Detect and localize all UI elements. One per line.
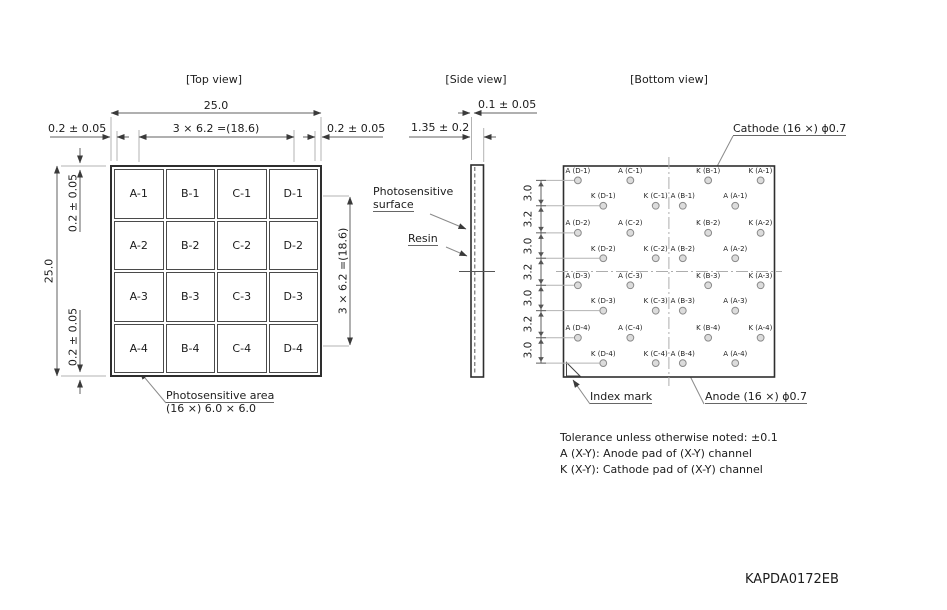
resin-label: Resin [408, 232, 438, 246]
note-cathode-legend: K (X-Y): Cathode pad of (X-Y) channel [560, 462, 778, 478]
pad-label: A (B-2) [671, 245, 695, 253]
note-anode-legend: A (X-Y): Anode pad of (X-Y) channel [560, 446, 778, 462]
anode-callout: Anode (16 ×) ϕ0.7 [705, 390, 807, 403]
pitch-dim-label: 3.0 [523, 290, 536, 307]
dim-edge-bottom: 0.2 ± 0.05 [67, 308, 80, 366]
resin-callout: Resin [408, 232, 438, 245]
pitch-dim-label: 3.2 [523, 263, 536, 280]
pitch-dim-label: 3.2 [523, 211, 536, 228]
pad-label: A (C-3) [618, 272, 642, 280]
pitch-dim-label: 3.0 [523, 342, 536, 359]
part-number: KAPDA0172EB [745, 572, 839, 587]
pad-label: K (C-1) [644, 192, 668, 200]
pad-label: K (C-3) [644, 297, 668, 305]
pad-label: K (A-1) [748, 167, 772, 175]
pitch-dim-label: 3.0 [523, 237, 536, 254]
dim-edge-right: 0.2 ± 0.05 [327, 122, 385, 135]
pad-label: A (C-1) [618, 167, 642, 175]
pad-label: K (C-4) [644, 350, 668, 358]
pad-label: A (B-1) [671, 192, 695, 200]
anode-label: Anode (16 ×) ϕ0.7 [705, 390, 807, 404]
pad-label: K (B-4) [696, 324, 720, 332]
surface-label-line2: surface [373, 198, 414, 212]
pad-label: K (D-4) [591, 350, 616, 358]
photosensitive-area-callout: Photosensitive area (16 ×) 6.0 × 6.0 [166, 389, 274, 415]
surface-label-line1: Photosensitive [373, 185, 453, 198]
dim-pitch-horizontal: 3 × 6.2 =(18.6) [173, 122, 260, 135]
cathode-label: Cathode (16 ×) ϕ0.7 [733, 122, 846, 136]
pad-label: A (D-2) [565, 219, 590, 227]
note-tolerance: Tolerance unless otherwise noted: ±0.1 [560, 430, 778, 446]
pad-label: K (C-2) [644, 245, 668, 253]
pad-label: A (C-4) [618, 324, 642, 332]
pad-label: K (D-2) [591, 245, 616, 253]
pad-label: A (A-3) [723, 297, 747, 305]
photosensitive-area-label: Photosensitive area [166, 389, 274, 403]
dim-pitch-vertical: 3 × 6.2 =(18.6) [337, 228, 350, 315]
index-mark-label: Index mark [590, 390, 652, 404]
pad-label: K (A-4) [748, 324, 772, 332]
bottom-view-title: [Bottom view] [630, 73, 708, 86]
pad-label: K (B-2) [696, 219, 720, 227]
pitch-dim-label: 3.2 [523, 316, 536, 333]
cathode-callout: Cathode (16 ×) ϕ0.7 [733, 122, 846, 135]
top-view-title: [Top view] [186, 73, 242, 86]
pad-label: K (A-2) [748, 219, 772, 227]
pad-label: K (D-3) [591, 297, 616, 305]
technical-drawing-page: A-1B-1C-1D-1A-2B-2C-2D-2A-3B-3C-3D-3A-4B… [0, 0, 947, 610]
pad-label: A (A-1) [723, 192, 747, 200]
pad-label: A (B-3) [671, 297, 695, 305]
pad-label: K (B-3) [696, 272, 720, 280]
dim-overall-height: 25.0 [43, 259, 56, 284]
pitch-dim-label: 3.0 [523, 185, 536, 202]
pad-label: A (B-4) [671, 350, 695, 358]
pad-label: A (A-2) [723, 245, 747, 253]
pad-label: K (D-1) [591, 192, 616, 200]
photosensitive-surface-callout: Photosensitive surface [373, 185, 453, 211]
pad-label: A (D-3) [565, 272, 590, 280]
dim-edge-left: 0.2 ± 0.05 [48, 122, 106, 135]
pad-label: A (C-2) [618, 219, 642, 227]
pad-label: K (B-1) [696, 167, 720, 175]
dim-thickness: 1.35 ± 0.2 [411, 121, 469, 134]
notes-block: Tolerance unless otherwise noted: ±0.1 A… [560, 430, 778, 478]
pad-label: A (D-1) [565, 167, 590, 175]
pad-label: A (A-4) [723, 350, 747, 358]
dim-edge-top: 0.2 ± 0.05 [67, 174, 80, 232]
pad-label: K (A-3) [748, 272, 772, 280]
pad-label: A (D-4) [565, 324, 590, 332]
dim-overall-width: 25.0 [204, 99, 229, 112]
photosensitive-area-size: (16 ×) 6.0 × 6.0 [166, 402, 256, 415]
pad-labels-layer: 3.03.23.03.23.03.23.0A (D-1)A (C-1)K (B-… [0, 0, 947, 610]
side-view-title: [Side view] [445, 73, 506, 86]
index-mark-callout: Index mark [590, 390, 652, 403]
dim-surface-offset: 0.1 ± 0.05 [478, 98, 536, 111]
